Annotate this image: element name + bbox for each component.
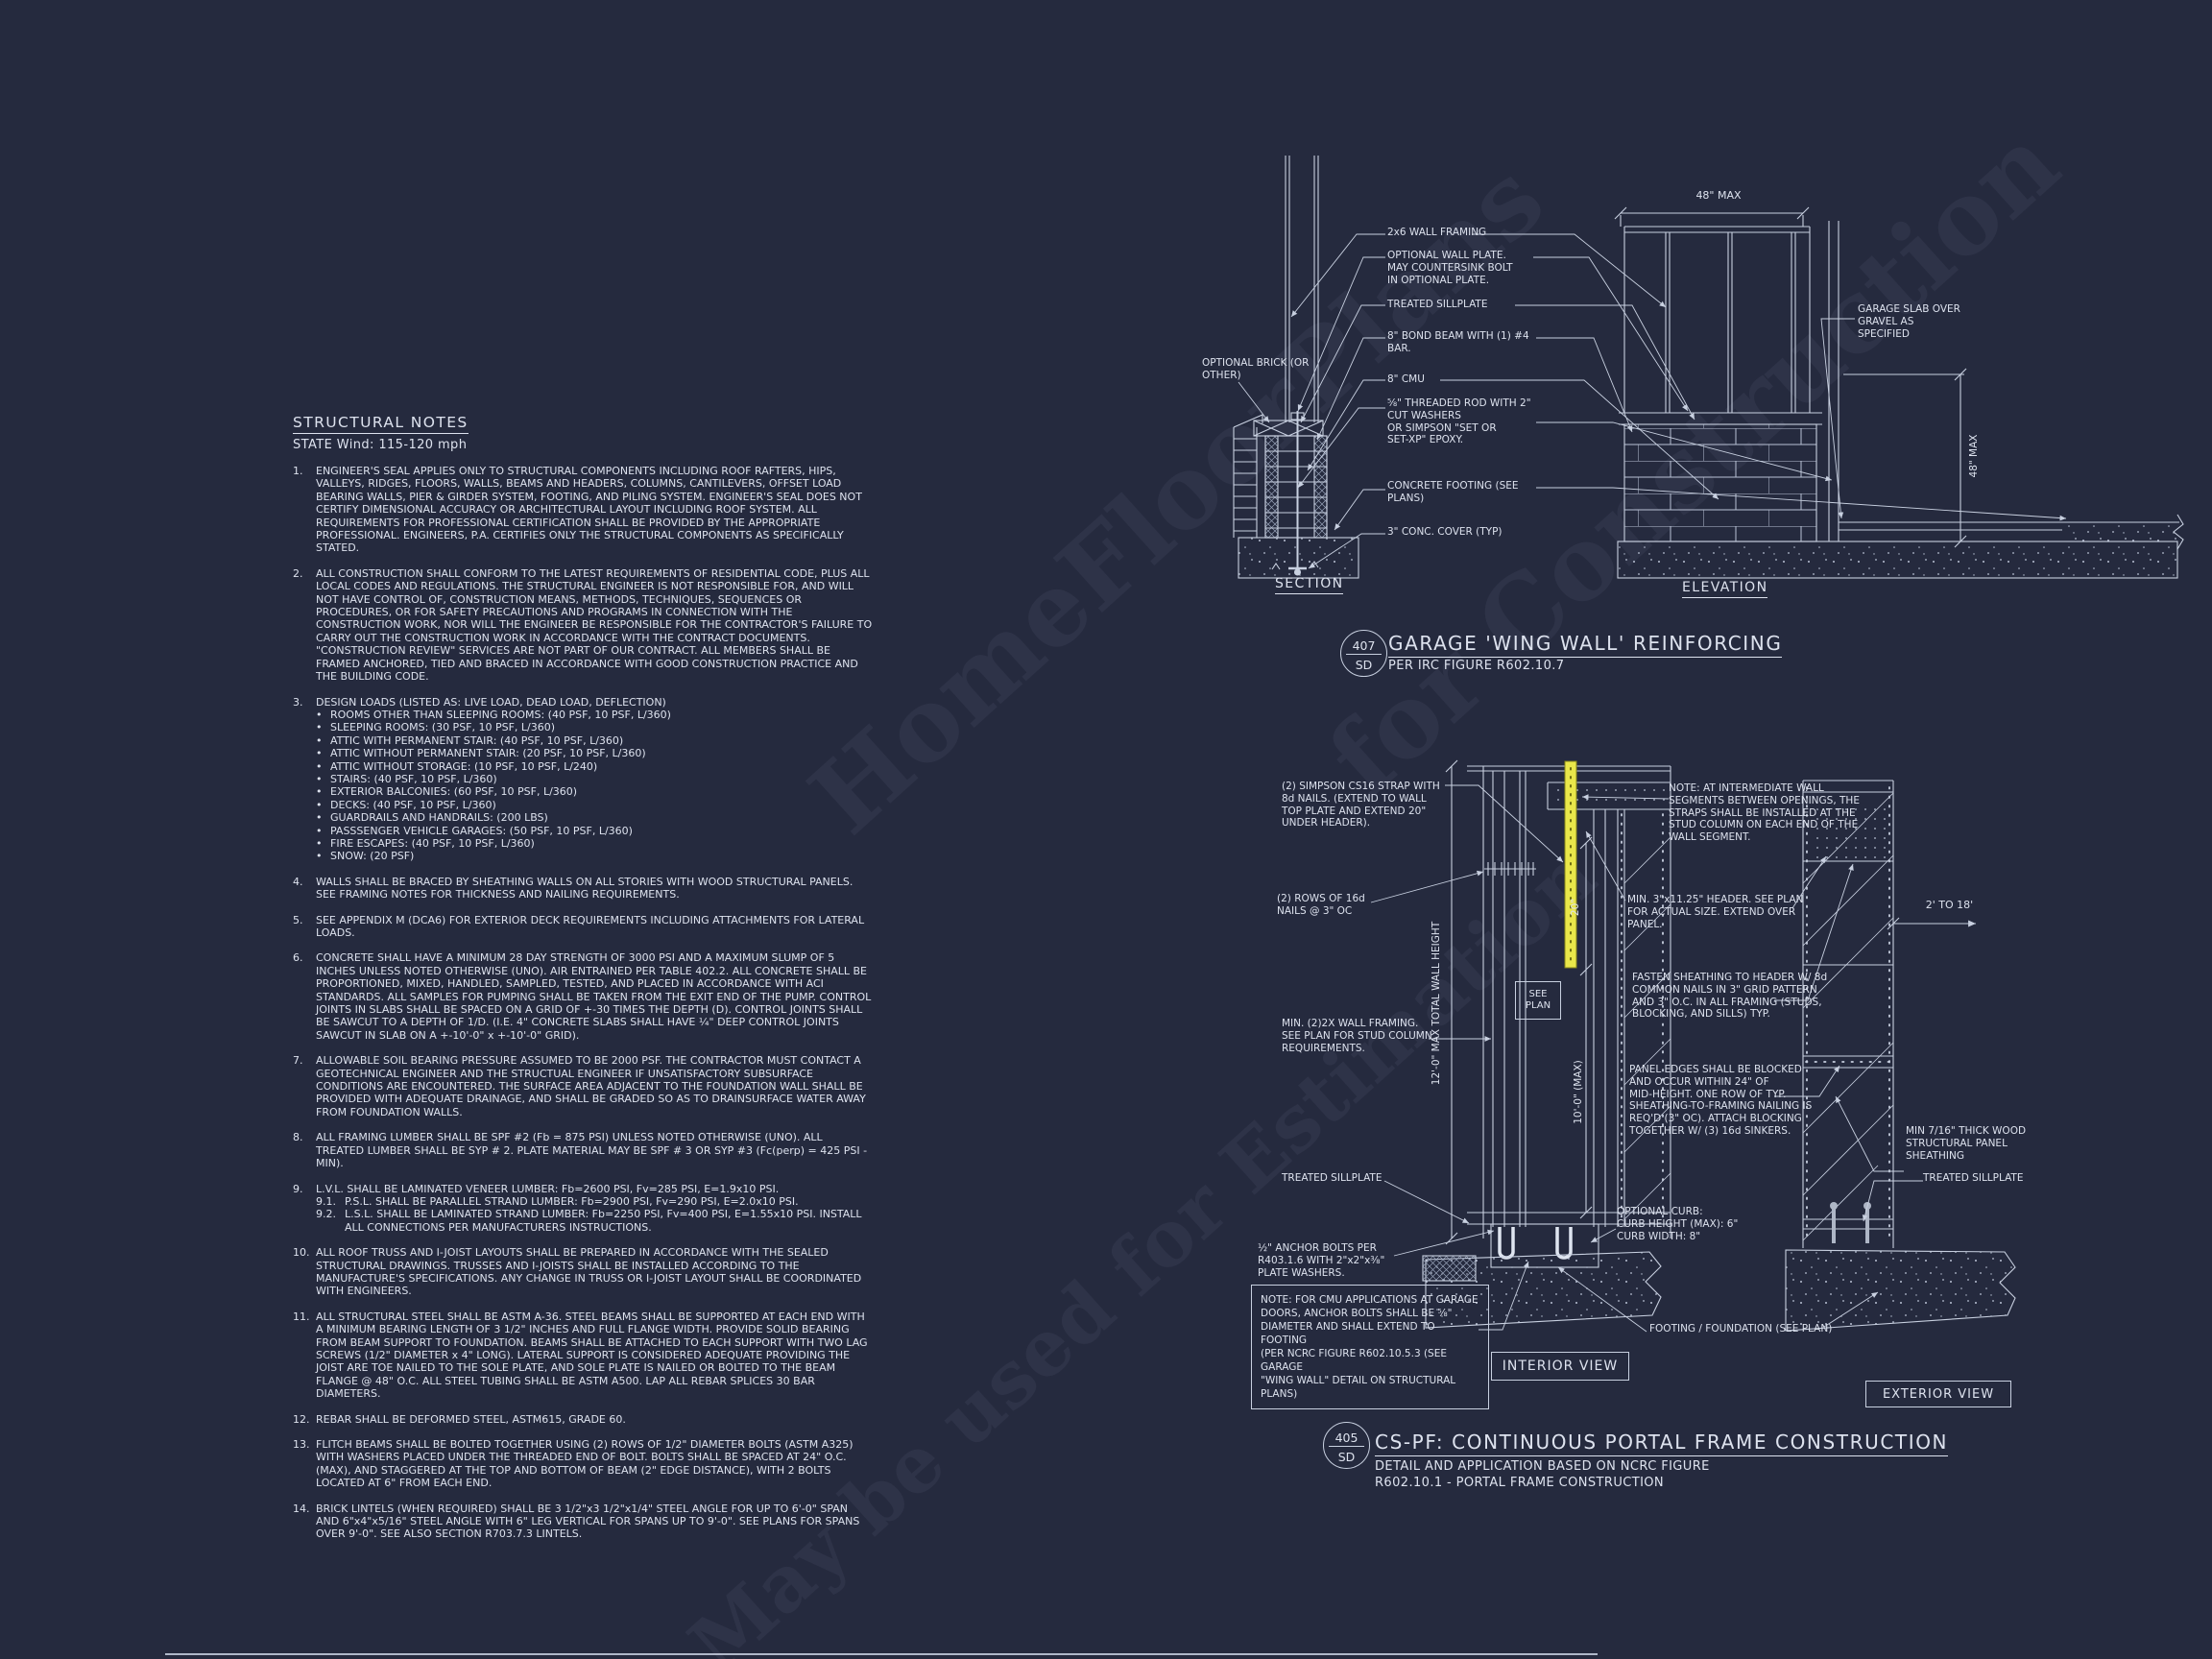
callout-wall-framing: MIN. (2)2X WALL FRAMING. SEE PLAN FOR ST… bbox=[1282, 1018, 1432, 1054]
note-number: 11. bbox=[293, 1310, 316, 1401]
note-text: FLITCH BEAMS SHALL BE BOLTED TOGETHER US… bbox=[316, 1438, 873, 1490]
note-text: ALL STRUCTURAL STEEL SHALL BE ASTM A-36.… bbox=[316, 1310, 873, 1401]
callout-simpson-strap: (2) SIMPSON CS16 STRAP WITH 8d NAILS. (E… bbox=[1282, 781, 1440, 829]
portal-frame-title: CS-PF: CONTINUOUS PORTAL FRAME CONSTRUCT… bbox=[1375, 1431, 1948, 1456]
structural-notes-section: STRUCTURAL NOTES STATE Wind: 115-120 mph… bbox=[293, 413, 873, 1553]
interior-view-label: INTERIOR VIEW bbox=[1491, 1352, 1629, 1381]
note-bullet: •DECKS: (40 PSF, 10 PSF, L/360) bbox=[316, 799, 873, 811]
note-number: 7. bbox=[293, 1054, 316, 1118]
note-bullet: •EXTERIOR BALCONIES: (60 PSF, 10 PSF, L/… bbox=[316, 785, 873, 798]
note-text: SEE APPENDIX M (DCA6) FOR EXTERIOR DECK … bbox=[316, 914, 873, 940]
dim-wall-height: 12'-0" MAX TOTAL WALL HEIGHT bbox=[1431, 878, 1442, 1128]
callout-nail-rows: (2) ROWS OF 16d NAILS @ 3" OC bbox=[1277, 893, 1365, 918]
notes-subtitle: STATE Wind: 115-120 mph bbox=[293, 438, 873, 452]
callout-wall-framing: 2x6 WALL FRAMING bbox=[1387, 227, 1486, 239]
note-number: 12. bbox=[293, 1413, 316, 1426]
note-bullet: •SNOW: (20 PSF) bbox=[316, 850, 873, 862]
note-text: REBAR SHALL BE DEFORMED STEEL, ASTM615, … bbox=[316, 1413, 873, 1426]
note-bullet: •ATTIC WITHOUT STORAGE: (10 PSF, 10 PSF,… bbox=[316, 760, 873, 773]
wing-wall-title: GARAGE 'WING WALL' REINFORCING bbox=[1388, 632, 1782, 658]
structural-note: 2.ALL CONSTRUCTION SHALL CONFORM TO THE … bbox=[293, 567, 873, 684]
callout-treated-sillplate-left: TREATED SILLPLATE bbox=[1282, 1172, 1382, 1185]
sheet-edge-line bbox=[165, 1653, 1598, 1655]
portal-frame-subtitle: DETAIL AND APPLICATION BASED ON NCRC FIG… bbox=[1375, 1459, 1710, 1491]
note-subitem: 9.1.P.S.L. SHALL BE PARALLEL STRAND LUMB… bbox=[316, 1195, 873, 1208]
note-bullet: •ATTIC WITHOUT PERMANENT STAIR: (20 PSF,… bbox=[316, 747, 873, 759]
callout-treated-sillplate-right: TREATED SILLPLATE bbox=[1923, 1172, 2023, 1185]
section-label: SECTION bbox=[1275, 576, 1343, 594]
dim-48-max-top: 48" MAX bbox=[1671, 189, 1767, 202]
elevation-label: ELEVATION bbox=[1682, 580, 1767, 598]
callout-optional-plate: OPTIONAL WALL PLATE. MAY COUNTERSINK BOL… bbox=[1387, 250, 1513, 286]
note-number: 1. bbox=[293, 465, 316, 555]
callout-conc-cover: 3" CONC. COVER (TYP) bbox=[1387, 526, 1503, 539]
note-number: 10. bbox=[293, 1246, 316, 1298]
structural-note: 11.ALL STRUCTURAL STEEL SHALL BE ASTM A-… bbox=[293, 1310, 873, 1401]
structural-note: 5.SEE APPENDIX M (DCA6) FOR EXTERIOR DEC… bbox=[293, 914, 873, 940]
note-text: ALL ROOF TRUSS AND I-JOIST LAYOUTS SHALL… bbox=[316, 1246, 873, 1298]
note-text: ALL FRAMING LUMBER SHALL BE SPF #2 (Fb =… bbox=[316, 1131, 873, 1169]
structural-note: 13.FLITCH BEAMS SHALL BE BOLTED TOGETHER… bbox=[293, 1438, 873, 1490]
dim-opening-height: 10'-0" (MAX) bbox=[1573, 1037, 1584, 1147]
callout-cmu: 8" CMU bbox=[1387, 373, 1425, 386]
note-intermediate-wall: NOTE: AT INTERMEDIATE WALL SEGMENTS BETW… bbox=[1669, 782, 1860, 844]
callout-anchor-bolts: ½" ANCHOR BOLTS PER R403.1.6 WITH 2"x2"x… bbox=[1258, 1242, 1384, 1279]
note-number: 3. bbox=[293, 696, 316, 863]
wing-wall-detail-linework bbox=[1181, 134, 2208, 626]
structural-note: 1.ENGINEER'S SEAL APPLIES ONLY TO STRUCT… bbox=[293, 465, 873, 555]
note-bullet: •SLEEPING ROOMS: (30 PSF, 10 PSF, L/360) bbox=[316, 721, 873, 733]
note-text: ENGINEER'S SEAL APPLIES ONLY TO STRUCTUR… bbox=[316, 465, 873, 555]
structural-note: 8.ALL FRAMING LUMBER SHALL BE SPF #2 (Fb… bbox=[293, 1131, 873, 1169]
callout-fasten-sheathing: FASTEN SHEATHING TO HEADER W/ 8d COMMON … bbox=[1632, 972, 1827, 1021]
callout-bond-beam: 8" BOND BEAM WITH (1) #4 BAR. bbox=[1387, 330, 1529, 355]
notes-title: STRUCTURAL NOTES bbox=[293, 414, 469, 434]
note-bullet: •FIRE ESCAPES: (40 PSF, 10 PSF, L/360) bbox=[316, 837, 873, 850]
note-number: 2. bbox=[293, 567, 316, 684]
exterior-view-label: EXTERIOR VIEW bbox=[1865, 1381, 2011, 1407]
note-text: ALL CONSTRUCTION SHALL CONFORM TO THE LA… bbox=[316, 567, 873, 684]
dim-opening-span: 2' TO 18' bbox=[1904, 899, 1995, 911]
callout-panel-sheathing: MIN 7/16" THICK WOOD STRUCTURAL PANEL SH… bbox=[1906, 1125, 2026, 1162]
callout-panel-edges: PANEL EDGES SHALL BE BLOCKED AND OCCUR W… bbox=[1629, 1064, 1812, 1138]
detail-sheet: SD bbox=[1356, 655, 1373, 677]
note-number: 9. bbox=[293, 1183, 316, 1235]
detail-sheet: SD bbox=[1338, 1447, 1356, 1469]
structural-note: 7.ALLOWABLE SOIL BEARING PRESSURE ASSUME… bbox=[293, 1054, 873, 1118]
note-text: DESIGN LOADS (LISTED AS: LIVE LOAD, DEAD… bbox=[316, 696, 873, 863]
callout-optional-curb: OPTIONAL CURB: CURB HEIGHT (MAX): 6" CUR… bbox=[1617, 1206, 1738, 1242]
note-text: CONCRETE SHALL HAVE A MINIMUM 28 DAY STR… bbox=[316, 951, 873, 1042]
note-number: 4. bbox=[293, 876, 316, 902]
dim-strap-extend: 20" bbox=[1570, 878, 1581, 936]
note-bullet: •GUARDRAILS AND HANDRAILS: (200 LBS) bbox=[316, 811, 873, 824]
note-cmu-applications: NOTE: FOR CMU APPLICATIONS AT GARAGE DOO… bbox=[1251, 1285, 1489, 1409]
note-subitem: 9.2.L.S.L. SHALL BE LAMINATED STRAND LUM… bbox=[316, 1208, 873, 1234]
callout-footing-foundation: FOOTING / FOUNDATION (SEE PLAN) bbox=[1649, 1323, 1851, 1335]
notes-list: 1.ENGINEER'S SEAL APPLIES ONLY TO STRUCT… bbox=[293, 465, 873, 1541]
structural-note: 12.REBAR SHALL BE DEFORMED STEEL, ASTM61… bbox=[293, 1413, 873, 1426]
detail-bubble-405: 405 SD bbox=[1323, 1422, 1370, 1469]
callout-optional-brick: OPTIONAL BRICK (OR OTHER) bbox=[1202, 357, 1309, 382]
callout-header: MIN. 3"x11.25" HEADER. SEE PLAN FOR ACTU… bbox=[1627, 894, 1803, 930]
structural-note: 9.L.V.L. SHALL BE LAMINATED VENEER LUMBE… bbox=[293, 1183, 873, 1235]
callout-treated-sillplate: TREATED SILLPLATE bbox=[1387, 299, 1487, 311]
note-number: 5. bbox=[293, 914, 316, 940]
structural-note: 14.BRICK LINTELS (WHEN REQUIRED) SHALL B… bbox=[293, 1503, 873, 1541]
note-bullet: •ROOMS OTHER THAN SLEEPING ROOMS: (40 PS… bbox=[316, 709, 873, 721]
note-number: 13. bbox=[293, 1438, 316, 1490]
wing-wall-subtitle: PER IRC FIGURE R602.10.7 bbox=[1388, 659, 1564, 675]
structural-note: 3.DESIGN LOADS (LISTED AS: LIVE LOAD, DE… bbox=[293, 696, 873, 863]
blueprint-sheet: HomeFloorPlans for Construction May be u… bbox=[0, 0, 2212, 1659]
note-number: 8. bbox=[293, 1131, 316, 1169]
structural-note: 10.ALL ROOF TRUSS AND I-JOIST LAYOUTS SH… bbox=[293, 1246, 873, 1298]
note-bullet: •STAIRS: (40 PSF, 10 PSF, L/360) bbox=[316, 773, 873, 785]
note-text: L.V.L. SHALL BE LAMINATED VENEER LUMBER:… bbox=[316, 1183, 873, 1235]
detail-number: 407 bbox=[1346, 631, 1382, 655]
detail-bubble-407: 407 SD bbox=[1340, 630, 1387, 677]
note-number: 14. bbox=[293, 1503, 316, 1541]
callout-threaded-rod: ⅝" THREADED ROD WITH 2" CUT WASHERS OR S… bbox=[1387, 397, 1531, 446]
see-plan-box: SEE PLAN bbox=[1515, 981, 1561, 1020]
detail-number: 405 bbox=[1329, 1423, 1365, 1447]
note-bullet: •ATTIC WITH PERMANENT STAIR: (40 PSF, 10… bbox=[316, 734, 873, 747]
callout-garage-slab: GARAGE SLAB OVER GRAVEL AS SPECIFIED bbox=[1858, 303, 1960, 340]
callout-concrete-footing: CONCRETE FOOTING (SEE PLANS) bbox=[1387, 480, 1519, 505]
dim-48-max-right: 48" MAX bbox=[1968, 403, 1980, 509]
note-text: WALLS SHALL BE BRACED BY SHEATHING WALLS… bbox=[316, 876, 873, 902]
note-number: 6. bbox=[293, 951, 316, 1042]
structural-note: 4.WALLS SHALL BE BRACED BY SHEATHING WAL… bbox=[293, 876, 873, 902]
note-bullet: •PASSSENGER VEHICLE GARAGES: (50 PSF, 10… bbox=[316, 825, 873, 837]
note-text: BRICK LINTELS (WHEN REQUIRED) SHALL BE 3… bbox=[316, 1503, 873, 1541]
note-text: ALLOWABLE SOIL BEARING PRESSURE ASSUMED … bbox=[316, 1054, 873, 1118]
structural-note: 6.CONCRETE SHALL HAVE A MINIMUM 28 DAY S… bbox=[293, 951, 873, 1042]
